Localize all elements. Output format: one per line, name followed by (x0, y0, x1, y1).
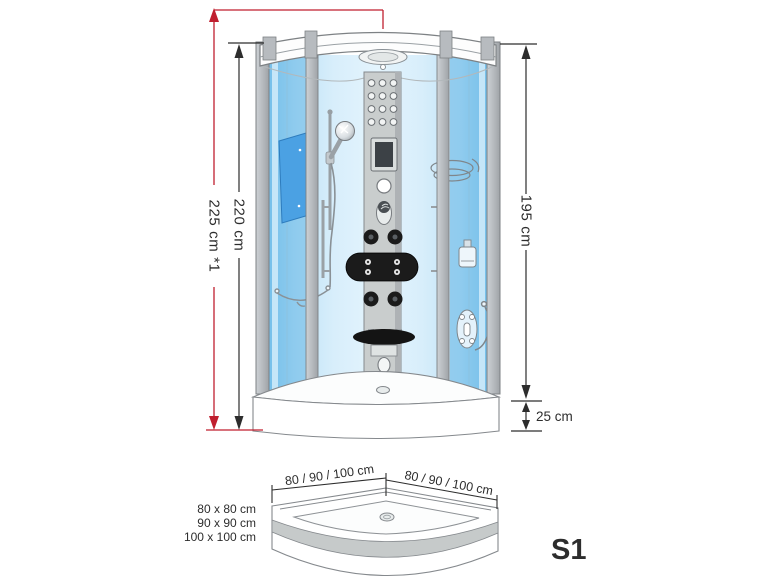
column-base-cap (378, 358, 390, 373)
display-screen (371, 138, 397, 171)
mullion-left (306, 55, 318, 387)
arrow-up-icon (522, 402, 530, 412)
right-frame-post (487, 42, 500, 394)
arrow-down-icon (235, 416, 244, 430)
dimension-label-tray-height: 25 cm (536, 409, 573, 424)
arrow-down-icon (522, 385, 531, 399)
dimension-label-inner-height: 220 cm (231, 199, 248, 252)
shower-cabin-dimension-diagram: 225 cm *1 220 cm 195 cm 25 cm (0, 0, 770, 578)
arrow-up-icon (522, 45, 531, 59)
arrow-down-icon (209, 416, 219, 430)
model-label: S1 (551, 534, 586, 566)
backrest-panel (279, 133, 309, 223)
roof-post-cap (305, 31, 317, 58)
drain-top-icon (380, 513, 394, 521)
foot-massage-jets-icon (457, 310, 477, 348)
massage-pad (346, 253, 418, 281)
roof-post-cap (481, 37, 494, 60)
drain-icon (377, 387, 390, 394)
dimension-label-glass-height: 195 cm (518, 195, 535, 248)
roof-post-cap (263, 37, 276, 60)
dimension-label-total-height: 225 cm *1 (206, 200, 223, 273)
size-option: 100 x 100 cm (184, 530, 256, 544)
diagram-canvas: 225 cm *1 220 cm 195 cm 25 cm (0, 0, 770, 578)
size-option: 80 x 80 cm (197, 502, 256, 516)
cabin-front-view (253, 31, 500, 439)
control-knob (377, 179, 391, 193)
mullion-right (437, 55, 449, 387)
arrow-up-icon (235, 44, 244, 58)
size-options-list: 80 x 80 cm 90 x 90 cm 100 x 100 cm (184, 502, 256, 544)
arrow-down-icon (522, 420, 530, 430)
size-option: 90 x 90 cm (197, 516, 256, 530)
tray-top-view: 80 / 90 / 100 cm 80 / 90 / 100 cm (272, 462, 498, 576)
roof-post-cap (440, 31, 452, 58)
mixer-valve (377, 201, 392, 225)
left-frame-post (256, 42, 269, 394)
